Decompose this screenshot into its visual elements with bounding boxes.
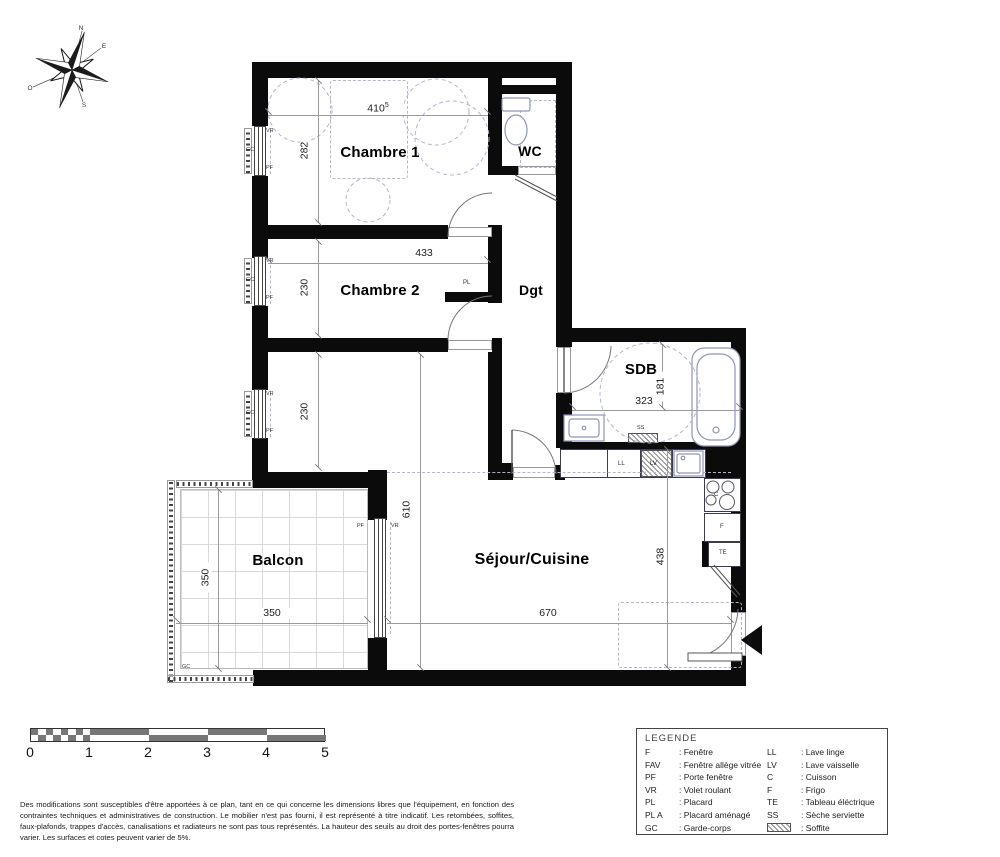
legend-abbr — [767, 822, 801, 836]
legend-abbr: FAV — [645, 759, 679, 772]
dim-sejour-width: 670 — [522, 608, 574, 619]
frigo-tag: F — [720, 524, 724, 530]
wall — [252, 62, 572, 78]
legend-title: LEGENDE — [645, 733, 887, 744]
legend-row: F: Fenêtre — [645, 746, 763, 759]
compass-n-label: N — [79, 25, 84, 32]
wall — [556, 328, 746, 342]
legend-label: : Sèche serviette — [801, 809, 885, 822]
wall — [253, 670, 746, 686]
seche-serviette — [628, 433, 658, 443]
legend-row: F: Frigo — [767, 784, 885, 797]
wall — [556, 393, 572, 448]
te-tag: TE — [719, 550, 727, 556]
compass-rose-icon: N E O S — [22, 18, 122, 118]
wall — [488, 166, 520, 175]
dim-line — [420, 354, 421, 668]
furniture-outline — [618, 602, 742, 668]
floor-plan-page: { "plan": { "rooms": { "chambre1": "Cham… — [0, 0, 1000, 857]
cooktop-box — [704, 478, 741, 512]
wall-placard — [445, 292, 502, 302]
cuisson-tag: C — [714, 492, 718, 498]
compass-s-label: S — [82, 102, 87, 109]
scale-tick-label: 1 — [85, 744, 93, 760]
wall — [252, 62, 268, 126]
dim-line — [218, 489, 219, 669]
window-chambre1 — [254, 126, 266, 176]
dim-ch1-height: 282 — [300, 136, 311, 166]
dim-line — [268, 263, 488, 264]
legend-row: C: Cuisson — [767, 771, 885, 784]
legend-box: LEGENDE F: FenêtreFAV: Fenêtre allège vi… — [636, 728, 888, 835]
dim-ch1-width: 4105 — [352, 100, 404, 115]
wc-door-leaf — [515, 175, 557, 197]
turning-circle-sdb — [600, 343, 700, 443]
scale-seg — [149, 735, 208, 741]
wall — [488, 352, 502, 470]
legend-column-left: F: FenêtreFAV: Fenêtre allège vitréePF: … — [645, 746, 763, 834]
pf-tag: PF — [266, 295, 273, 301]
ss-tag: SS — [637, 425, 644, 431]
furniture-circle — [268, 78, 332, 142]
legend-label: : Placard — [679, 796, 763, 809]
room-label-wc: WC — [500, 143, 560, 159]
dim-ch2-height: 230 — [300, 273, 311, 303]
dim-balcon-height: 350 — [201, 563, 212, 593]
room-label-chambre1: Chambre 1 — [310, 144, 450, 161]
porte-fenetre-balcon — [374, 518, 386, 638]
legend-row: PF: Porte fenêtre — [645, 771, 763, 784]
wall — [252, 472, 382, 488]
ll-tag: LL — [618, 461, 625, 467]
gc-tag: GC — [246, 277, 254, 283]
legend-abbr: C — [767, 771, 801, 784]
legend-abbr: PL — [645, 796, 679, 809]
furniture-circle — [346, 178, 390, 222]
legend-abbr: TE — [767, 796, 801, 809]
lv-tag: LV — [650, 461, 657, 467]
gc-tag: GC — [246, 147, 254, 153]
legend-row: VR: Volet roulant — [645, 784, 763, 797]
scale-tick-label: 0 — [26, 744, 34, 760]
legend-label: : Cuisson — [801, 771, 885, 784]
counter-divider — [607, 449, 608, 478]
furniture-circle — [415, 101, 489, 175]
counter-divider — [672, 449, 673, 478]
sdb-sink-inner — [569, 419, 599, 437]
scale-bar-graphic — [30, 728, 325, 742]
dim-ch2-width: 433 — [398, 248, 450, 259]
wall — [368, 470, 387, 520]
legend-label: : Soffite — [801, 822, 885, 836]
bed-outline — [330, 80, 408, 179]
dim-line — [176, 623, 368, 624]
wall — [368, 638, 387, 680]
dim-kitchen-height: 438 — [656, 542, 667, 572]
legend-label: : Garde-corps — [679, 822, 763, 835]
sdb-sink-drain — [582, 426, 586, 430]
legend-label: : Fenêtre allège vitrée — [679, 759, 763, 772]
legend-label: : Tableau éléctrique — [801, 796, 885, 809]
legend-abbr: GC — [645, 822, 679, 835]
legend-label: : Lave vaisselle — [801, 759, 885, 772]
legend-column-right: LL: Lave lingeLV: Lave vaisselleC: Cuiss… — [767, 746, 885, 835]
wall — [731, 328, 746, 612]
legend-abbr: PL A — [645, 809, 679, 822]
gc-tag: GC — [182, 664, 190, 670]
legend-row: PL: Placard — [645, 796, 763, 809]
legend-abbr: LL — [767, 746, 801, 759]
scale-tick-label: 3 — [203, 744, 211, 760]
legend-row: SS: Sèche serviette — [767, 809, 885, 822]
door-opening — [448, 340, 492, 350]
dim-balcon-width: 350 — [246, 608, 298, 619]
door-opening — [557, 347, 571, 393]
disclaimer-text: Des modifications sont susceptibles d'êt… — [20, 799, 514, 843]
room-label-dgt: Dgt — [501, 282, 561, 298]
legend-abbr: VR — [645, 784, 679, 797]
gc-tag: GC — [246, 410, 254, 416]
legend-label: : Placard aménagé — [679, 809, 763, 822]
legend-abbr: LV — [767, 759, 801, 772]
garde-corps — [167, 675, 254, 683]
room-label-balcon: Balcon — [208, 552, 348, 569]
dim-line — [387, 623, 731, 624]
wc-door-leaf — [515, 179, 557, 201]
scale-seg — [31, 735, 90, 741]
legend-label: : Frigo — [801, 784, 885, 797]
window-chambre2 — [254, 256, 266, 306]
furniture-circle — [403, 79, 469, 145]
scale-seg — [267, 735, 326, 741]
door-opening — [448, 227, 492, 237]
legend-abbr: SS — [767, 809, 801, 822]
legend-label: : Lave linge — [801, 746, 885, 759]
compass-e-label: E — [102, 43, 107, 50]
dim-sdb-height: 181 — [656, 372, 667, 402]
soffite-swatch-icon — [767, 823, 791, 832]
legend-row: : Soffite — [767, 822, 885, 836]
garde-corps — [167, 480, 175, 683]
vr-tag: VR — [266, 391, 274, 397]
pf-tag: PF — [266, 165, 273, 171]
room-label-sejour: Séjour/Cuisine — [432, 551, 632, 569]
vr-tag: VR — [266, 128, 274, 134]
legend-row: PL A: Placard aménagé — [645, 809, 763, 822]
scale-tick-label: 5 — [321, 744, 329, 760]
legend-label: : Volet roulant — [679, 784, 763, 797]
compass-w-label: O — [27, 85, 32, 92]
wall — [492, 338, 502, 352]
legend-row: TE: Tableau éléctrique — [767, 796, 885, 809]
pl-tag: PL — [463, 280, 470, 286]
scale-tick-label: 2 — [144, 744, 152, 760]
wall — [556, 62, 572, 347]
dim-line — [318, 80, 319, 223]
legend-abbr: F — [645, 746, 679, 759]
bathtub-drain — [713, 427, 719, 433]
legend-row: LV: Lave vaisselle — [767, 759, 885, 772]
legend-label: : Porte fenêtre — [679, 771, 763, 784]
legend-row: FAV: Fenêtre allège vitrée — [645, 759, 763, 772]
door-arc-chambre2 — [448, 296, 492, 340]
scale-bar: 012345 — [28, 726, 330, 764]
legend-abbr: F — [767, 784, 801, 797]
legend-label: : Fenêtre — [679, 746, 763, 759]
dim-alcove-height: 230 — [300, 397, 311, 427]
wall — [252, 176, 268, 258]
wall — [252, 338, 448, 352]
dim-line — [318, 354, 319, 468]
wall — [252, 225, 448, 239]
bathtub-inner — [697, 354, 735, 440]
window-alcove — [254, 389, 266, 439]
legend-row: GC: Garde-corps — [645, 822, 763, 835]
dim-sejour-height: 610 — [402, 495, 413, 525]
volet-roulant-line — [390, 522, 391, 634]
scale-tick-label: 4 — [262, 744, 270, 760]
legend-abbr: PF — [645, 771, 679, 784]
room-label-chambre2: Chambre 2 — [310, 282, 450, 299]
soffite-line — [387, 472, 731, 473]
scale-seg — [208, 729, 267, 735]
scale-seg — [90, 729, 149, 735]
pf-tag: PF — [266, 428, 273, 434]
door-arc-sdb — [564, 346, 611, 393]
legend-row: LL: Lave linge — [767, 746, 885, 759]
dim-line — [572, 410, 740, 411]
kitchen-counter — [560, 449, 706, 478]
vr-tag: VR — [391, 523, 399, 529]
dim-line — [318, 241, 319, 336]
dim-line — [667, 449, 668, 668]
dim-line — [268, 115, 488, 116]
